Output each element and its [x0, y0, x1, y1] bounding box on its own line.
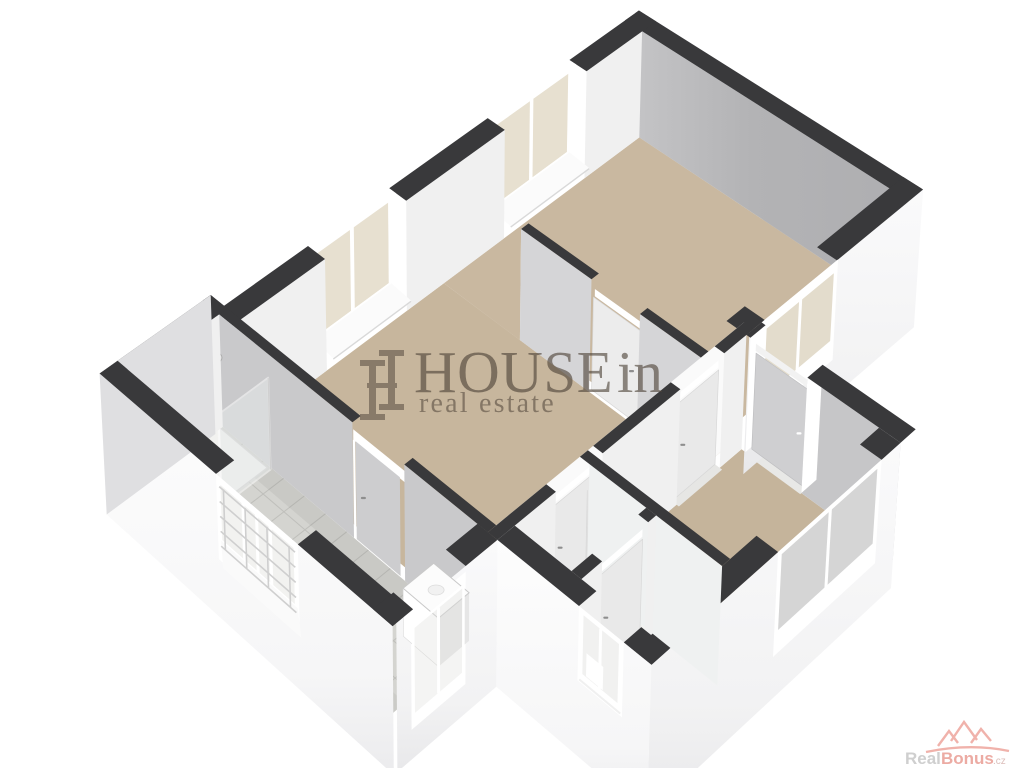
svg-text:in: in: [617, 339, 663, 405]
svg-text:.cz: .cz: [993, 756, 1006, 767]
svg-text:Bonus: Bonus: [941, 749, 994, 768]
svg-text:real estate: real estate: [419, 388, 556, 419]
svg-text:Real: Real: [905, 749, 941, 768]
